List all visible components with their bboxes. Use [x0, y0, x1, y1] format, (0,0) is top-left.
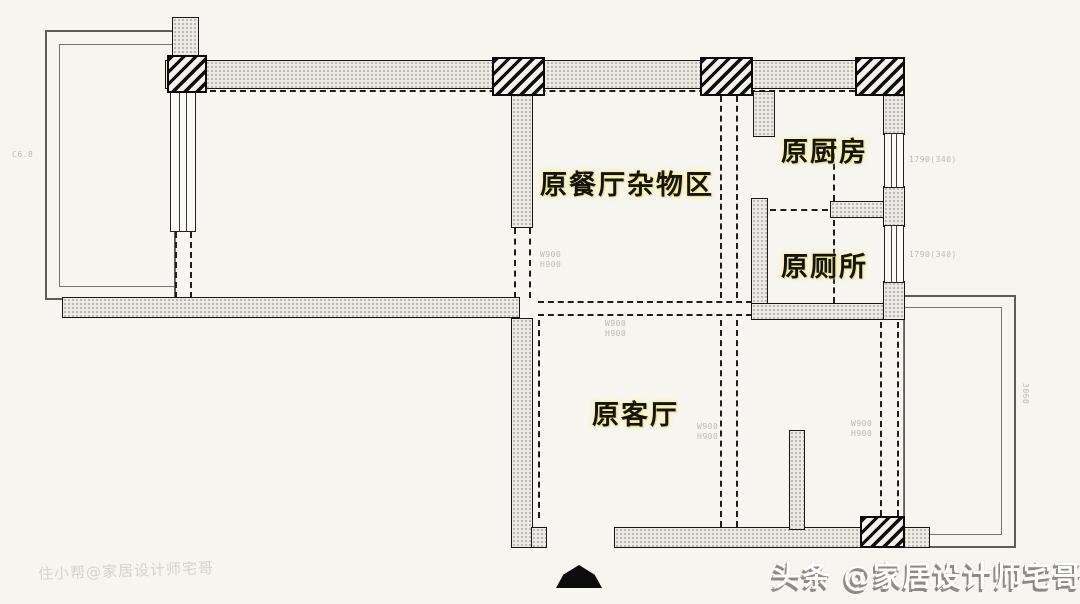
wall-living-left-foot: [531, 527, 547, 548]
wall-toilet-left: [751, 198, 768, 320]
dim-toilet-window: 1790(340): [909, 250, 957, 260]
window-left-wall: [170, 92, 196, 232]
room-label-toilet: 原厕所: [781, 245, 868, 284]
watermark-bottom-right: 头条 @家居设计师宅哥: [772, 553, 1080, 595]
dash-mid-wall-opening-a: [514, 228, 516, 298]
room-label-living: 原客厅: [592, 393, 679, 432]
dash-left-wall-opening-a: [175, 232, 177, 298]
dim-hall-opening: W900 H900: [605, 319, 626, 340]
dash-left-wall-opening-b: [190, 232, 192, 298]
dash-center-upper-b: [736, 96, 738, 298]
watermark-bottom-left: 住小帮@家居设计师宅哥: [38, 557, 215, 584]
dash-toilet-door: [770, 209, 828, 211]
pillar-top-far-right: [855, 57, 905, 96]
room-label-kitchen: 原厨房: [781, 130, 868, 169]
dim-kitchen-window: 1790(340): [909, 155, 957, 165]
window-kitchen-right: [884, 133, 904, 188]
dim-right-balcony: 3060: [1020, 383, 1030, 404]
pillar-top-center: [492, 57, 545, 96]
wall-living-left: [511, 318, 533, 548]
pillar-top-left: [167, 55, 207, 93]
wall-toilet-bottom: [751, 303, 905, 320]
wall-bottom-left: [62, 297, 520, 318]
dim-living-opening: W900 H900: [697, 422, 718, 443]
dash-hall-horizontal-a: [538, 301, 752, 303]
wall-kitchen-left-stub: [753, 91, 775, 137]
wall-right-mid: [883, 186, 905, 227]
dash-center-upper-a: [720, 96, 722, 298]
room-label-dining: 原餐厅杂物区: [540, 163, 714, 202]
pillar-bottom-right: [860, 516, 905, 548]
dim-left-edge: C6.8: [12, 150, 33, 160]
wall-stub-above-pillar: [172, 17, 199, 60]
dash-center-lower-b: [736, 320, 738, 527]
window-toilet-right: [884, 225, 904, 283]
left-balcony-inner-line: [59, 44, 176, 287]
wall-right-lower: [883, 281, 905, 320]
dash-mid-wall-opening-b: [529, 228, 531, 298]
wall-living-right-vertical: [789, 430, 805, 530]
dim-living-right-opening: W900 H900: [851, 419, 872, 440]
dash-hall-horizontal-b: [538, 314, 752, 316]
pillar-top-right: [700, 57, 753, 96]
dash-living-right-a: [880, 322, 882, 516]
dim-mid-wall-opening: W900 H900: [540, 250, 561, 271]
dash-center-lower-a: [720, 320, 722, 527]
entry-arrow-icon: [556, 565, 602, 588]
floor-plan: 原餐厅杂物区 原厨房 原厕所 原客厅 W900 H900 W900 H900 W…: [0, 0, 1080, 604]
dash-living-left-inner: [538, 320, 540, 518]
right-balcony-inner-line: [903, 307, 1002, 535]
wall-mid-vertical: [511, 93, 533, 228]
dash-living-right-b: [897, 322, 899, 516]
